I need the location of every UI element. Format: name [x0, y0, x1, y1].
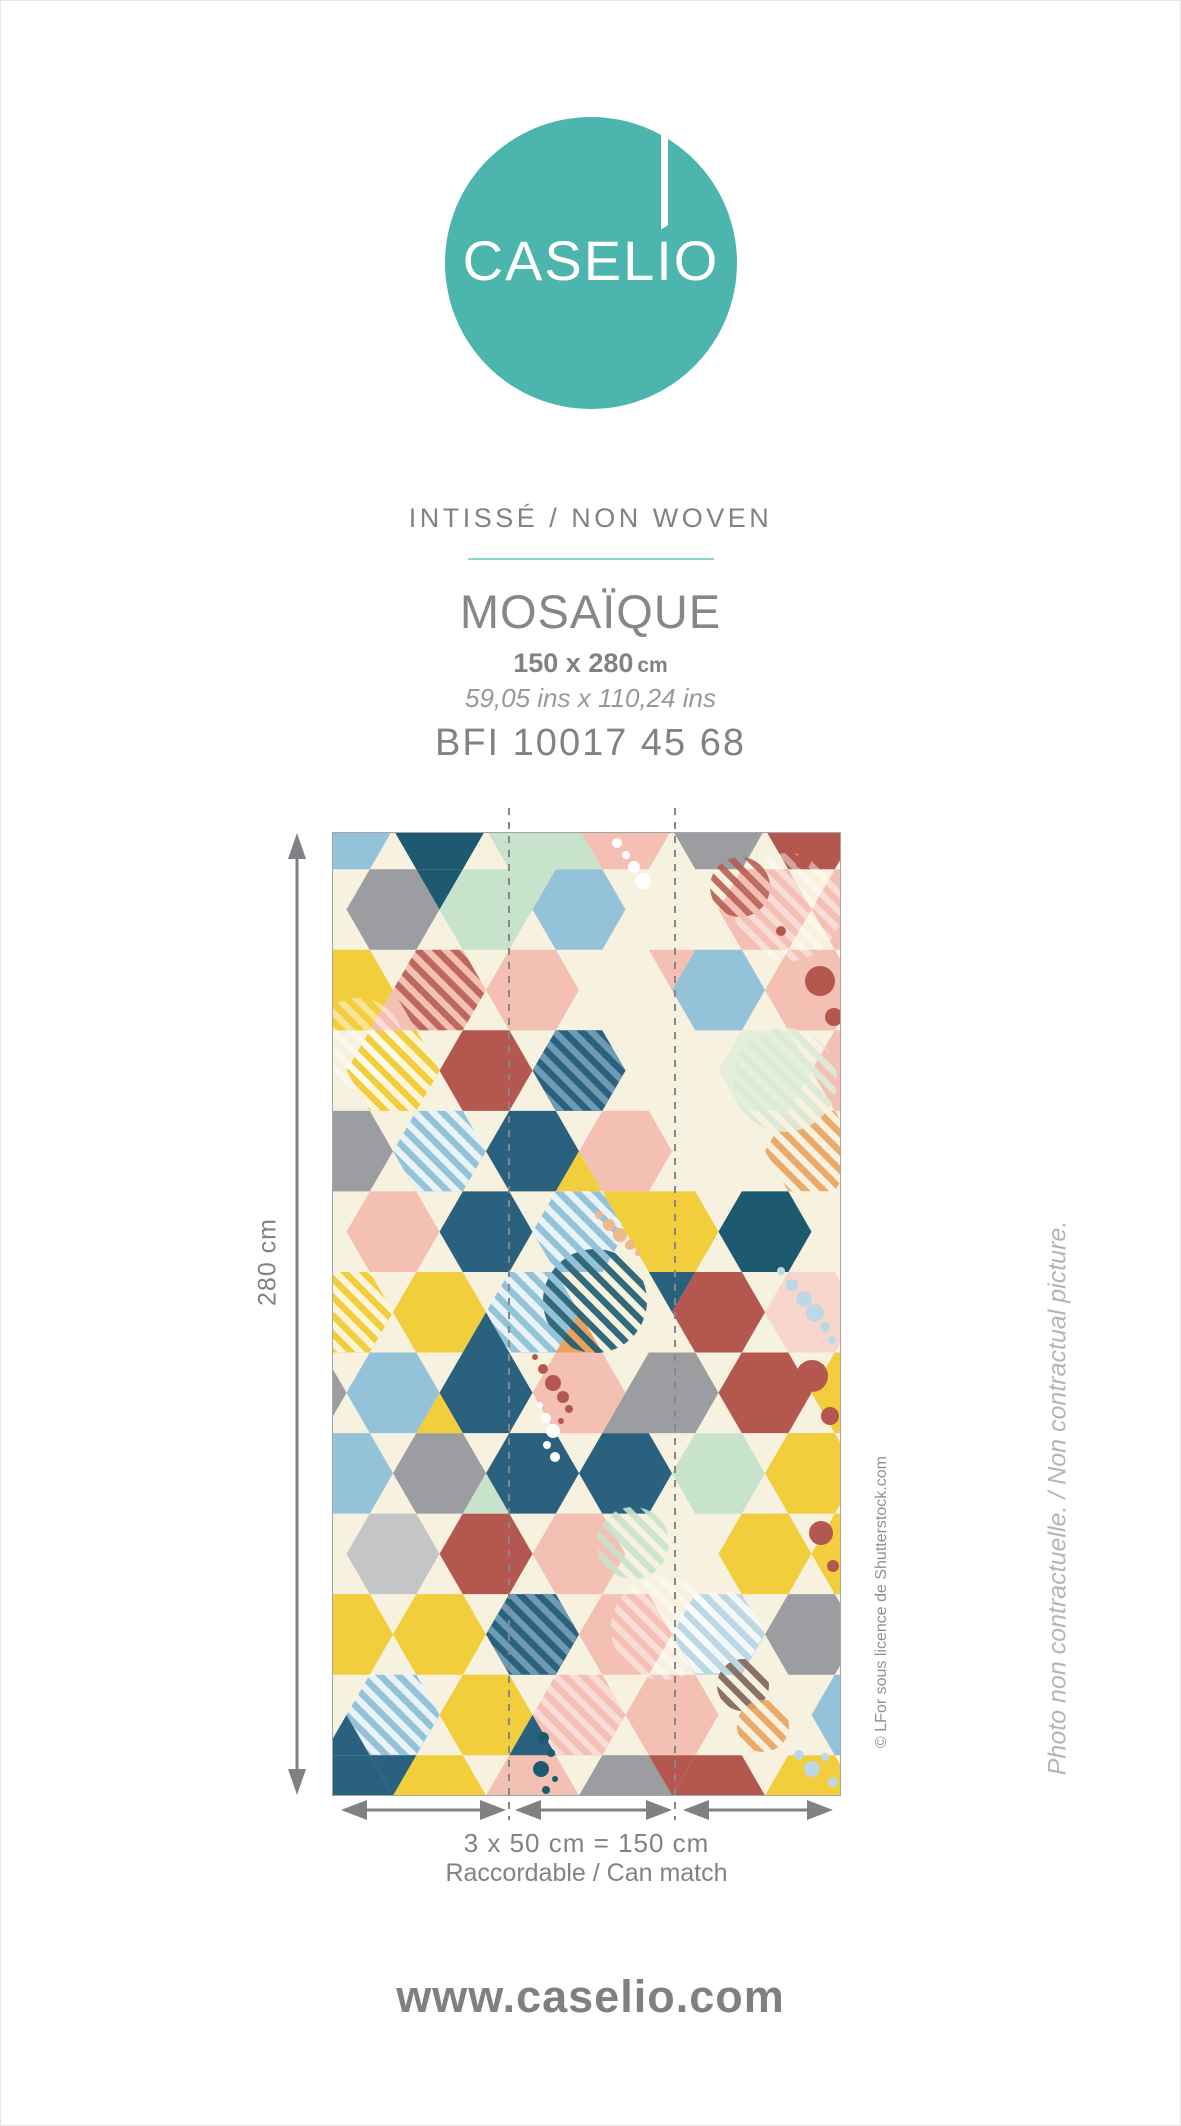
teal-divider — [468, 558, 714, 560]
strip-cut-line-right — [674, 808, 676, 1820]
match-label: Raccordable / Can match — [333, 1859, 840, 1888]
product-sheet: CASELIO INTISSÉ / NON WOVEN MOSAÏQUE 150… — [0, 0, 1181, 2126]
credit-note: © LFor sous licence de Shutterstock.com — [873, 1456, 891, 1748]
size-metric-unit: cm — [637, 654, 667, 677]
material-label: INTISSÉ / NON WOVEN — [0, 503, 1181, 534]
wallpaper-preview-image — [332, 832, 841, 1796]
product-reference: BFI 10017 45 68 — [0, 722, 1181, 765]
disclaimer-note: Photo non contractuelle. / Non contractu… — [1044, 1221, 1073, 1776]
width-arrows-icon — [333, 1795, 840, 1825]
brand-wordmark: CASELIO — [445, 232, 737, 289]
website-url: www.caselio.com — [0, 1971, 1181, 2023]
collection-title: MOSAÏQUE — [0, 584, 1181, 639]
height-label: 280 cm — [254, 1218, 283, 1306]
size-imperial: 59,05 ins x 110,24 ins — [0, 683, 1181, 714]
strip-cut-line-left — [508, 808, 510, 1820]
size-metric: 150 x 280cm — [0, 648, 1181, 679]
logo-clock-hand-icon — [661, 133, 668, 233]
size-metric-value: 150 x 280 — [513, 648, 633, 678]
height-arrow-icon — [283, 829, 311, 1799]
width-label: 3 x 50 cm = 150 cm — [333, 1828, 840, 1859]
